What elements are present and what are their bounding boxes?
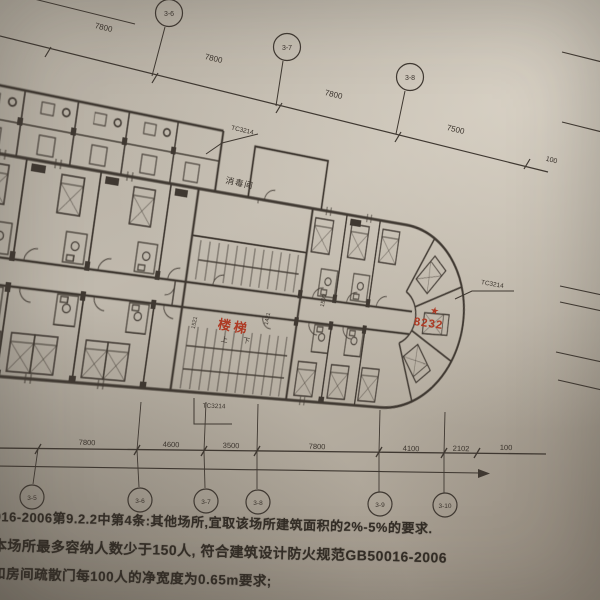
dim-label: 100 [500,443,513,452]
top-dimension-line [0,0,548,172]
star-icon: ★ [429,305,440,317]
grid-label: 3-7 [201,499,211,506]
window-tag-leader [206,134,258,154]
window-tag: TC3214 [230,125,254,137]
room-number-label: 8232 [413,316,444,332]
disinfection-room-label: 消毒间 [225,175,255,191]
dim-label: 7800 [324,88,344,101]
stairs-up-label: 上 [220,334,228,344]
dim-label: 2102 [453,444,470,453]
interior-dim: 1500 [320,294,328,307]
window-tag-leader [455,291,514,299]
window-tag-leader [194,398,232,424]
grid-label: 3-8 [253,500,263,507]
grid-label: 3-7 [282,45,292,52]
grid-label: 3-8 [405,75,415,82]
stairs-down-label: 下 [242,336,250,345]
grid-label: 3-5 [27,495,37,502]
dim-label: 3500 [223,441,240,450]
interior-dim: 1421 [264,312,272,325]
dim-label: 4600 [163,440,180,449]
dim-label: 7800 [204,52,224,65]
dim-label: 100 [545,156,558,166]
dim-label: 7500 [446,123,466,136]
grid-label: 3-6 [164,11,174,18]
grid-label: 3-10 [438,503,451,510]
dim-label: 7800 [79,438,96,447]
grid-label: 3-9 [375,502,385,509]
dim-label: 4100 [403,444,420,453]
dim-label: 7800 [309,442,326,451]
interior-dim: 1521 [191,316,199,329]
dim-label: 7800 [94,21,114,34]
window-tag: TC3214 [480,279,504,290]
right-edge-stubs [556,52,600,390]
photo-background: 3-6 3-7 3-8 7800 7800 7800 7500 100 TC32… [0,0,600,600]
grid-label: 3-6 [135,498,145,505]
stairs-label: 楼梯 [217,316,251,336]
